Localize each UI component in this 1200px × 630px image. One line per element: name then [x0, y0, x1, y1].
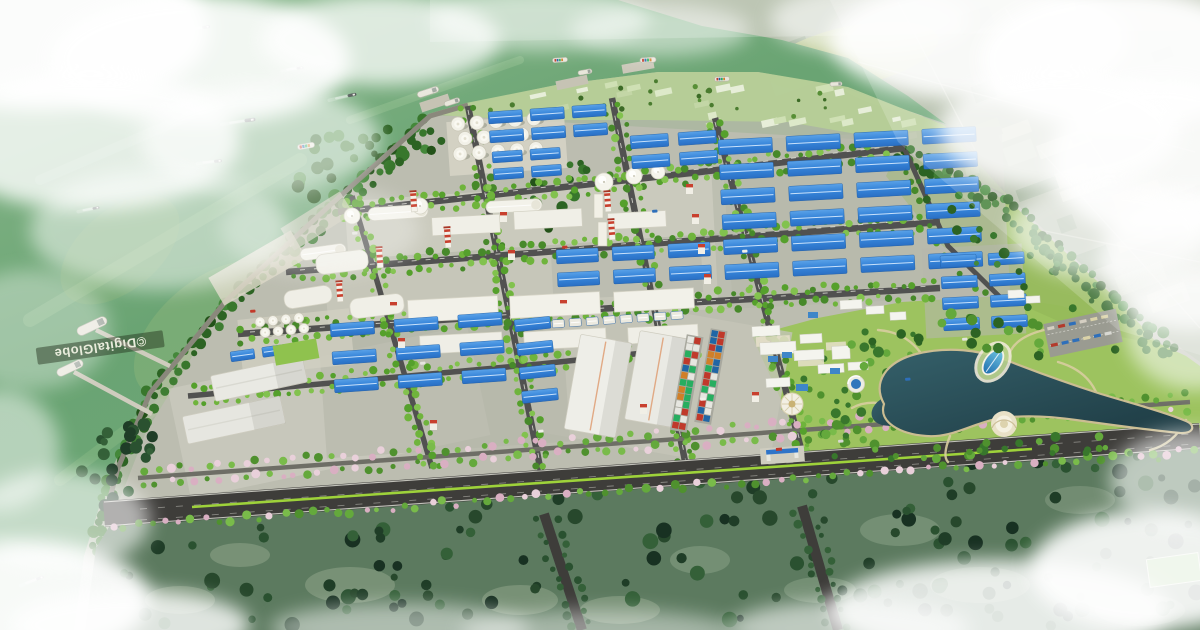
red-roof-unit [500, 212, 507, 222]
amphitheater [991, 411, 1017, 437]
cargo-ship [640, 57, 656, 63]
campus-building [794, 349, 824, 361]
vehicle [905, 378, 911, 381]
red-roof-unit [686, 184, 693, 194]
vehicle [420, 362, 426, 365]
campus-pool [782, 352, 792, 358]
blue-sheds-southwest [330, 312, 506, 393]
red-roof-unit [398, 338, 405, 348]
vehicle [700, 398, 706, 401]
red-roof-unit [692, 214, 699, 224]
campus-building [752, 325, 780, 336]
campus-pool [808, 312, 818, 318]
campus-building [866, 306, 884, 315]
vehicle [490, 302, 496, 305]
forest-clearing [860, 514, 940, 546]
screenshot-canvas: ©DigitalGlobe [0, 0, 1200, 630]
plant-dome [595, 173, 613, 191]
plant-building [608, 210, 667, 229]
red-roof-unit [640, 404, 647, 414]
aerial-render: ©DigitalGlobe [0, 0, 1200, 630]
campus-pool [768, 356, 778, 362]
campus-pool [830, 368, 840, 374]
plant-tower [594, 194, 603, 218]
plant-tower [598, 222, 607, 246]
plant-dome [626, 168, 642, 184]
vehicle [652, 210, 658, 213]
vehicle [838, 440, 844, 443]
northeast-office [1008, 290, 1024, 299]
vehicle [562, 246, 568, 249]
forest-clearing [210, 543, 270, 567]
cloud [940, 70, 1180, 190]
campus-building [832, 346, 851, 360]
red-roof-unit [390, 302, 397, 312]
vehicle [250, 310, 256, 313]
campus-building [890, 312, 906, 321]
red-roof-unit [752, 392, 759, 402]
red-roof-unit [508, 250, 515, 260]
campus-pool [796, 384, 808, 391]
river-ship [830, 82, 842, 87]
campus-building [840, 299, 862, 309]
red-roof-unit [698, 244, 705, 254]
plant-building [432, 214, 501, 236]
spiral-building [848, 376, 865, 393]
cargo-ship [552, 57, 567, 63]
northeast-office [1026, 296, 1040, 304]
cargo-ship [714, 76, 729, 81]
campus-building [800, 333, 822, 343]
entrance-gate [760, 445, 805, 464]
plant-building [514, 208, 583, 230]
cloud [570, 4, 750, 56]
white-warehouse [614, 288, 695, 312]
red-roof-unit [560, 300, 567, 310]
white-warehouse [509, 292, 600, 319]
cloud [220, 185, 420, 275]
round-pavilion [781, 393, 803, 415]
vehicle [742, 250, 748, 253]
red-roof-unit [704, 274, 711, 284]
campus-building [766, 377, 790, 387]
vehicle [962, 338, 968, 341]
red-roof-unit [430, 420, 437, 430]
vehicle [538, 430, 544, 433]
